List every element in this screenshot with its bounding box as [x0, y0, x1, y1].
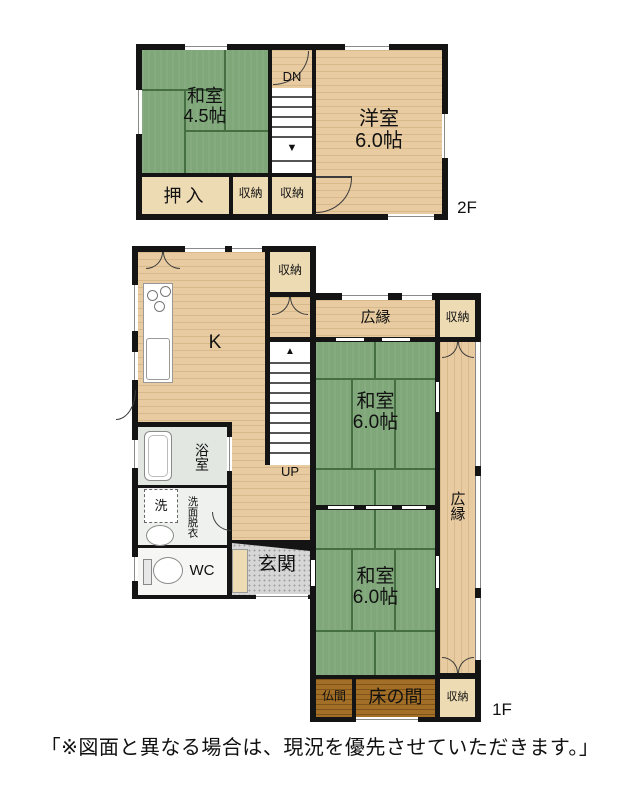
washitsu-4_5-label: 和室 4.5帖 [142, 84, 268, 128]
tokonoma-label: 床の間 [356, 684, 435, 710]
stairs-up [270, 342, 310, 465]
room-size: 6.0帖 [353, 412, 398, 433]
butsuma-label: 仏間 [316, 688, 352, 706]
tatami-line [316, 548, 435, 550]
room-size: 6.0帖 [353, 587, 398, 608]
tatami-line [316, 378, 435, 380]
room-name: 和室 [356, 566, 394, 587]
sliding-door-gap [402, 506, 426, 509]
kitchen-sink [146, 338, 170, 380]
stair-tread [272, 116, 312, 118]
youshitsu-label: 洋室 6.0帖 [316, 106, 442, 154]
stair-tread [270, 412, 310, 414]
floor-plan-image: ▼ 和室 4.5帖 DN 洋室 6.0帖 押入 収納 収納 2F ▲ [0, 0, 640, 800]
window [185, 246, 225, 252]
toilet-bowl [153, 557, 183, 584]
washitsu-upper-label: 和室 6.0帖 [316, 388, 435, 436]
window [342, 293, 388, 300]
stair-tread [270, 402, 310, 404]
sliding-door-gap [366, 506, 392, 509]
sliding-door-gap [436, 382, 439, 412]
wall-tick [475, 466, 481, 476]
sliding-door-gap [436, 556, 439, 588]
disclaimer-text: 「※図面と異なる場合は、現況を優先させていただきます。」 [0, 731, 640, 760]
stairs-down-arrow-icon: ▼ [272, 140, 312, 156]
stove-burner-icon [160, 286, 171, 297]
entrance-label: 玄関 [246, 553, 308, 577]
stair-tread [272, 126, 312, 128]
stair-tread [272, 136, 312, 138]
window [132, 352, 138, 380]
floor2-label: 2F [450, 197, 484, 219]
washer-label: 洗 [145, 497, 177, 515]
tatami-line [374, 342, 376, 380]
stairs-up-label: UP [268, 465, 312, 480]
sliding-door-gap [382, 338, 410, 341]
room-name: 洋室 [359, 108, 399, 130]
window-wall [475, 342, 481, 660]
sliding-door-gap [328, 506, 354, 509]
sliding-door-gap [227, 437, 232, 471]
toilet-tank [143, 559, 152, 585]
wall-tick [475, 588, 481, 598]
stair-tread [270, 442, 310, 444]
stair-tread [270, 422, 310, 424]
room-size: 6.0帖 [355, 130, 403, 152]
window [345, 44, 389, 50]
room-size: 4.5帖 [183, 106, 226, 126]
window [132, 440, 138, 468]
window [356, 717, 418, 722]
window [402, 293, 432, 300]
bathtub-inner [148, 435, 168, 477]
veranda-top-label: 広縁 [316, 308, 435, 328]
wash-basin [146, 525, 174, 546]
entrance-door [256, 594, 308, 600]
bathroom-label: 浴室 [192, 434, 212, 480]
room-name: 和室 [356, 391, 394, 412]
stair-tread [270, 372, 310, 374]
tatami-line [184, 130, 268, 132]
washitsu-lower-label: 和室 6.0帖 [316, 563, 435, 611]
wall [265, 252, 270, 465]
veranda-right-label: 広縁 [447, 484, 467, 528]
tatami-line [374, 510, 376, 550]
window [132, 557, 138, 581]
tatami-line [374, 632, 376, 675]
closet-b-label: 収納 [272, 186, 312, 202]
window [232, 246, 262, 252]
stairs-up-arrow-icon: ▲ [270, 344, 310, 359]
wall [138, 545, 227, 548]
closet-ne-label: 収納 [440, 310, 475, 326]
stair-tread [270, 362, 310, 364]
stair-tread [272, 106, 312, 108]
stair-tread [270, 392, 310, 394]
stair-tread [270, 382, 310, 384]
wall [138, 485, 227, 488]
stair-tread [272, 160, 312, 162]
window [185, 44, 227, 50]
stair-tread [270, 432, 310, 434]
stove-burner-icon [147, 290, 158, 301]
closet-nw-label: 収納 [270, 263, 310, 279]
closet-a-label: 収納 [233, 186, 268, 202]
window [388, 214, 434, 220]
stove-burner-icon [154, 301, 165, 312]
wall [265, 337, 316, 342]
sliding-door-gap [311, 560, 315, 586]
dressing-room-label: 洗面脱衣 [186, 489, 200, 545]
toilet-label: WC [182, 561, 222, 581]
tatami-line [374, 470, 376, 505]
room-name: 和室 [187, 86, 223, 106]
kitchen-label: K [190, 330, 240, 356]
oshiire-label: 押入 [142, 183, 229, 209]
sliding-door-gap [336, 338, 364, 341]
floor1-label: 1F [487, 699, 517, 721]
closet-se-label: 収納 [440, 690, 475, 705]
window [132, 285, 138, 331]
stair-tread [272, 96, 312, 98]
wall [138, 422, 227, 427]
stair-tread [270, 452, 310, 454]
window [442, 114, 448, 158]
stairs-dn-label: DN [272, 69, 312, 85]
